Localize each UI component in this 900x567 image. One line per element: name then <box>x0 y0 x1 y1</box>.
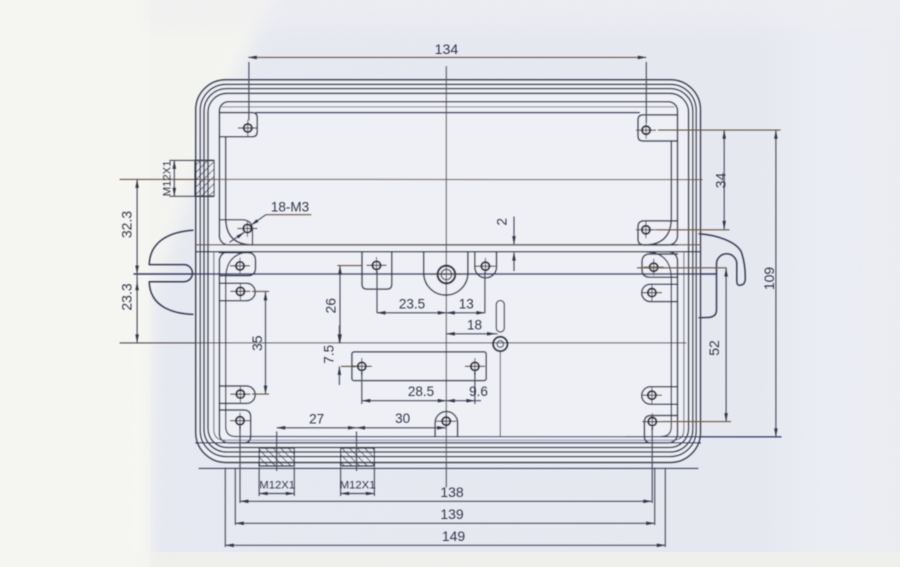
svg-text:32.3: 32.3 <box>119 211 135 238</box>
svg-text:27: 27 <box>309 412 324 427</box>
svg-text:26: 26 <box>322 298 338 314</box>
svg-text:23.5: 23.5 <box>399 297 425 312</box>
svg-text:M12X1: M12X1 <box>259 480 295 492</box>
svg-text:28.5: 28.5 <box>408 384 434 399</box>
svg-text:M12X1: M12X1 <box>340 480 376 492</box>
svg-text:134: 134 <box>435 42 459 58</box>
svg-text:13: 13 <box>459 297 474 312</box>
svg-text:149: 149 <box>442 528 466 544</box>
svg-text:34: 34 <box>713 173 729 189</box>
svg-text:M12X1: M12X1 <box>161 161 173 197</box>
svg-text:18-M3: 18-M3 <box>271 200 309 215</box>
svg-text:138: 138 <box>440 484 464 500</box>
svg-text:109: 109 <box>761 267 777 291</box>
svg-text:52: 52 <box>706 340 722 356</box>
svg-text:2: 2 <box>494 218 509 226</box>
svg-text:139: 139 <box>440 506 464 522</box>
svg-text:9.6: 9.6 <box>469 384 488 399</box>
svg-text:18: 18 <box>467 318 482 333</box>
svg-text:35: 35 <box>249 335 265 351</box>
svg-text:23.3: 23.3 <box>119 283 135 310</box>
svg-text:30: 30 <box>395 411 410 426</box>
svg-text:7.5: 7.5 <box>321 345 336 364</box>
